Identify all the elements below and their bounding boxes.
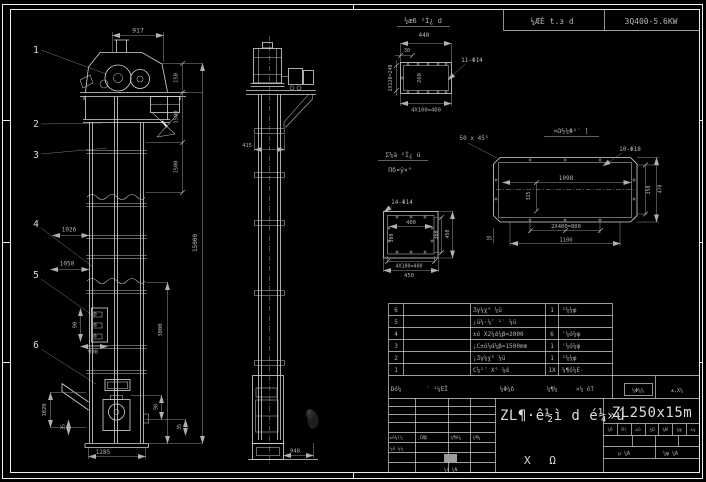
dim-c-bottom2: 450: [404, 273, 414, 279]
bom-row: 2 ¡Ʒγ¼χ° ¼ü 1 ²¼¼φ: [394, 355, 577, 362]
dim-c-right-inner: 360: [434, 230, 440, 239]
dim-front-left1: 1026: [62, 227, 77, 234]
bom-cell-qty: 1: [550, 343, 554, 350]
bom-cell-name: ¡C±ό¼ά¼β=1500mm: [473, 342, 528, 350]
bom-row: 4 ±ό X2¼ά¼β=2000 6 '¼ό¼φ: [394, 330, 580, 338]
info-cells-row: ¼δ Rί ±ύ ¼Ω ¼Ν ¼ψ ±γ: [607, 426, 696, 433]
dim-a-width: 440: [419, 32, 430, 39]
bom-row: 5 ¡ü¼·¼″ ¹′ ¼ü: [394, 319, 517, 326]
drawing-type: Χ Ω: [524, 454, 562, 467]
title-block: ±ό¼(¼′ ¸Ώ䶼 ¼¶Χ¼ ¼¶¼ ¼ό ¼¼ ¼ό ¼Ν ZL¶·ê½ì …: [389, 399, 700, 474]
cad-drawing: ¼ÆÈ t.з d 3Q400-5.6KW 1 2 3 4 5 6: [0, 0, 706, 482]
label-a-holes: 11-Φ14: [461, 57, 483, 64]
sheet-count-right: ¼ψ ¼Ά: [663, 450, 678, 457]
dim-a-inner: 260: [417, 73, 423, 83]
bom-cell-name: ±ό X2¼ά¼β=2000: [473, 330, 524, 338]
bom-cell-name: Ʒγ¼χ° ¼ü: [473, 307, 502, 314]
dim-side-flange: 415: [242, 143, 252, 149]
dim-b-width: 1098: [559, 175, 574, 182]
bom-header-no: Dό¼: [391, 385, 402, 393]
check-label: ¼ό ¼Ν: [444, 466, 458, 473]
balloon-callouts: 1 2 3 4 5 6: [33, 45, 107, 384]
info-cell: ¼δ: [607, 427, 613, 433]
header-cell-left: ¼ÆÈ t.з d: [530, 15, 574, 26]
dim-front-h3: 1500: [174, 160, 180, 173]
dim-c-top: 400: [406, 220, 416, 226]
dim-a-bottom: 4X100=400: [411, 108, 441, 114]
detail-b-title: ¤Ω½¼Φ¹′ ]: [553, 127, 588, 135]
bom-cell-mat: ²¼¼φ: [562, 355, 577, 362]
model-number: ZL250x15m: [612, 405, 692, 421]
bom-cell-mat: '¼ό¼φ: [562, 330, 580, 338]
section-label-bottom: Πδ¤ÿ×°: [388, 166, 411, 174]
dim-b-bottom1: 2X400=800: [551, 224, 581, 230]
drawing-title: ZL¶·ê½ì d é¼»ú: [500, 408, 625, 424]
bom-cell-qty: 1X: [548, 367, 556, 374]
dim-front-left2: 1050: [60, 261, 75, 268]
bom-cell-mat: ¼¶ό¼Ε·: [562, 366, 584, 374]
dim-front-total: 15000: [192, 234, 199, 252]
header-cells: ¼ÆÈ t.з d 3Q400-5.6KW: [504, 10, 700, 31]
rev-cell: ¼¶Χ¼: [451, 435, 462, 441]
bom-row: 6 Ʒγ¼χ° ¼ü 1 ²¼¼φ: [394, 307, 577, 314]
rev-cell: ±ό¼(¼′: [390, 434, 406, 441]
bom-cell-qty: 1: [550, 355, 554, 362]
bom-cell-name: ¡ü¼·¼″ ¹′ ¼ü: [473, 319, 517, 326]
dim-side-base: 948: [290, 449, 300, 455]
dim-b-corner: 35: [486, 236, 492, 242]
callout-1: 1: [33, 45, 39, 56]
bom-row: 1 C¼¹″ X° ¼ά 1X ¼¶ό¼Ε·: [394, 366, 584, 374]
dim-b-bottom2: 1100: [559, 238, 572, 244]
dim-c-right-outer: 450: [445, 229, 451, 238]
dim-bucket-height: 998: [88, 350, 98, 356]
detail-view-b: ¤Ω½¼Φ¹′ ] 50 x 45° 10-Φ18 1098 325 350 4…: [460, 127, 664, 246]
callout-2: 2: [33, 119, 39, 130]
side-elevation-view: 415 948: [242, 36, 318, 465]
bom-cell-mat: ²¼¼φ: [562, 307, 577, 314]
revision-row: ±ό¼(¼′ ¸Ώ䶼 ¼¶Χ¼ ¼¶¼: [390, 434, 481, 441]
bom-cell-name: ¡Ʒγ¼χ° ¼ü: [473, 355, 506, 362]
section-label: Σ¼ä ¹Ì¿ ü Πδ¤ÿ×°: [378, 150, 428, 174]
info-cell: ±γ: [690, 428, 696, 433]
section-label-top: Σ¼ä ¹Ì¿ ü: [385, 150, 420, 159]
bom-cell-no: 3: [394, 343, 398, 350]
dim-front-h1: 150: [174, 73, 180, 83]
header-cell-right: 3Q400-5.6KW: [625, 17, 678, 26]
dim-c-left: 300: [389, 233, 395, 242]
rev-cell: ¸Ώ䶼: [418, 434, 428, 441]
selected-cell: [444, 454, 457, 462]
rev-cell: ¼¶¼: [473, 435, 481, 441]
info-cell: ±ύ: [635, 426, 641, 433]
info-cell: ¼ψ: [676, 427, 682, 433]
design-label: ¼ό ¼¼: [390, 445, 404, 452]
dim-front-h2: 1500: [174, 110, 180, 123]
detail-a-label: ½æ6 ¹Ì¿ d: [404, 16, 442, 25]
bom-header-code: ′ ¹¼ΕΪ: [426, 384, 448, 393]
dim-boot-left2: 35: [61, 424, 67, 430]
bom-row: 3 ¡C±ό¼ά¼β=1500mm 1 '¼ό¼φ: [394, 342, 580, 350]
callout-5: 5: [33, 270, 39, 281]
label-b-holes: 10-Φ18: [619, 146, 641, 153]
label-c-holes: 14-Φ14: [391, 199, 413, 206]
bom-cell-no: 5: [394, 319, 398, 326]
dim-b-left: 325: [526, 191, 532, 200]
cad-drawing-sheet: ¼ÆÈ t.з d 3Q400-5.6KW 1 2 3 4 5 6: [0, 0, 706, 482]
dim-b-right1: 350: [646, 185, 652, 194]
bom-cell-qty: 6: [550, 331, 554, 338]
bom-cell-no: 1: [394, 367, 398, 374]
dim-boot-left1: 1020: [42, 403, 48, 416]
bom-header-qty: ¼¶¼: [547, 386, 558, 393]
bom-cell-no: 6: [394, 307, 398, 314]
dim-boot-right1: 90: [154, 404, 160, 410]
dim-front-width: 917: [132, 27, 144, 35]
callout-4: 4: [33, 219, 39, 230]
info-cell: ¼Ω: [649, 427, 655, 433]
dim-a-left: 2X120=240: [388, 64, 394, 91]
cursor-smudge: [306, 409, 319, 429]
label-b-chamfer: 50 x 45°: [460, 135, 489, 142]
bom-header-scale: ±,Χ¼: [671, 388, 683, 394]
dim-boot-right2: 35: [177, 424, 183, 430]
dim-b-right2: 470: [658, 184, 664, 193]
bom-header-mat: ×¼ όT: [576, 385, 594, 393]
dim-front-h4: 3000: [158, 323, 164, 336]
bom-header-row: Dό¼ ′ ¹¼ΕΪ ¼Φ¼δ ¼¶¼ ×¼ όT ¼Φ¼¼ ±,Χ¼: [391, 384, 683, 396]
callout-6: 6: [33, 340, 39, 351]
info-cell: ¼Ν: [662, 427, 668, 433]
dim-bucket-width: 90: [73, 322, 79, 329]
bom-table: 6 Ʒγ¼χ° ¼ü 1 ²¼¼φ 5 ¡ü¼·¼″ ¹′ ¼ü 4 ±ό X2…: [389, 304, 700, 473]
info-cell: Rί: [621, 426, 627, 433]
sheet-count-left: μ ¼Ά: [618, 450, 630, 457]
callout-3: 3: [33, 150, 39, 161]
bom-cell-qty: 1: [550, 307, 554, 314]
dim-c-bottom1: 4X100=400: [395, 264, 422, 270]
bom-cell-name: C¼¹″ X° ¼ά: [473, 366, 510, 374]
detail-view-a: ½æ6 ¹Ì¿ d 440 30 2X120=240 260 11-Φ14 4X…: [388, 16, 483, 114]
bom-header-weight: ¼Φ¼¼: [632, 388, 644, 394]
bom-header-name: ¼Φ¼δ: [500, 386, 515, 393]
detail-view-c: 14-Φ14 400 300 360 450 4X100=400 450: [384, 199, 454, 279]
dim-boot-width: 1285: [96, 449, 111, 456]
bom-cell-mat: '¼ό¼φ: [562, 342, 580, 350]
bom-cell-no: 2: [394, 355, 398, 362]
bom-cell-no: 4: [394, 331, 398, 338]
dim-a-offset: 30: [404, 48, 410, 54]
